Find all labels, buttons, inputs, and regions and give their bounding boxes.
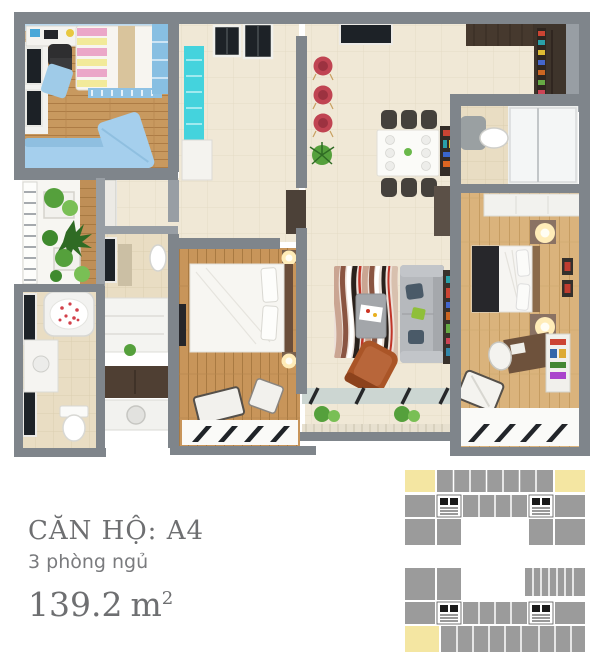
storage-nook — [100, 298, 168, 356]
shelf-plant — [124, 344, 136, 356]
master-window-blinds — [458, 408, 580, 446]
sofa-armrest — [400, 351, 444, 363]
unit-caption: CĂN HỘ: A4 3 phòng ngủ 139.2m2 — [28, 514, 204, 625]
kids-bed — [76, 26, 162, 98]
bath1-east-wall — [96, 286, 105, 456]
cyan-cabinet — [184, 46, 204, 140]
pillow — [261, 306, 278, 341]
coffee-table — [356, 294, 386, 338]
outer-wall-left-upper — [14, 12, 25, 180]
building-key-plans — [393, 464, 597, 658]
bathtub — [44, 292, 94, 336]
unit-title: CĂN HỘ: A4 — [28, 514, 204, 548]
hall-stub-wall — [168, 180, 179, 222]
unit-area: 139.2m2 — [28, 579, 204, 625]
pillow — [516, 250, 530, 277]
dark-cabinet — [102, 366, 168, 398]
dining-chair — [401, 110, 417, 129]
bed-runner — [118, 26, 135, 90]
kids-entry-wall — [168, 22, 179, 172]
area-exponent: 2 — [162, 588, 174, 609]
bed — [190, 264, 293, 352]
decor-plates — [313, 57, 333, 138]
loggia-garden — [22, 180, 96, 288]
small-bath-north-wall — [100, 226, 178, 234]
outer-wall-right — [579, 12, 590, 456]
bathroom1-vanity — [24, 340, 58, 392]
apartment-floorplan-page: CĂN HỘ: A4 3 phòng ngủ 139.2m2 — [0, 0, 600, 658]
small-bath-vanity — [118, 244, 132, 286]
sofa — [400, 265, 444, 363]
bedroom2-window-blinds — [182, 420, 298, 445]
hall-living-wall-lower — [296, 228, 307, 394]
sofa-armrest — [400, 265, 444, 277]
master-south-wall — [450, 447, 590, 456]
unit-row — [441, 626, 585, 652]
floor-plan-rendering — [0, 0, 600, 480]
washer-counter — [102, 400, 170, 430]
bedroom2-north-wall — [172, 238, 280, 249]
pillow — [516, 284, 530, 311]
table-centerpiece — [404, 148, 412, 156]
master-west-wall — [450, 94, 461, 448]
elevator-core — [529, 495, 553, 517]
key-plan-1 — [405, 470, 585, 545]
shoe-cabinet — [286, 190, 306, 234]
kids-desk — [26, 26, 82, 46]
highlighted-unit — [405, 626, 439, 652]
dining-set — [377, 110, 439, 197]
area-value: 139.2 — [28, 585, 122, 624]
bathroom-2 — [456, 106, 578, 184]
bath2-north-wall — [455, 94, 581, 106]
unit-bedroom-count: 3 phòng ngủ — [28, 549, 204, 575]
master-bed — [472, 246, 540, 312]
loggia-railing — [23, 182, 37, 284]
highlighted-unit — [555, 470, 585, 492]
key-plan-2 — [405, 568, 585, 652]
black-duvet — [472, 246, 499, 312]
small-bath-window — [104, 238, 116, 282]
dining-chair — [401, 178, 417, 197]
pillow — [261, 267, 278, 302]
throw-pillow — [405, 283, 424, 300]
magazine — [359, 305, 383, 323]
elevator-core — [437, 602, 461, 624]
outer-wall-left-lower — [14, 284, 23, 456]
balcony-glass-floor — [302, 388, 452, 404]
transom-glass-panel — [340, 24, 392, 44]
bath2-south-wall — [450, 184, 581, 193]
shower — [510, 108, 576, 182]
throw-pillow — [408, 330, 424, 344]
striped-units — [525, 568, 585, 596]
bed-footboard — [88, 88, 162, 98]
sofa-back — [433, 265, 444, 363]
entry-door-glass — [214, 24, 272, 58]
dining-chair — [381, 178, 397, 197]
dining-chair — [381, 110, 397, 129]
balcony-south-wall — [300, 432, 454, 441]
outer-wall-bottom-left — [14, 448, 106, 457]
white-cabinet — [182, 140, 212, 180]
bath1-north-wall — [14, 284, 104, 292]
elevator-core — [437, 495, 461, 517]
dining-chair — [421, 110, 437, 129]
bedroom2-south-wall — [170, 446, 316, 455]
wall-tv — [179, 304, 186, 346]
bedroom2-west-wall — [168, 234, 179, 448]
kitchen-dark-floor — [466, 24, 544, 46]
balcony-railing — [302, 424, 452, 433]
master-bookshelf — [546, 334, 570, 392]
outer-wall-top — [14, 12, 590, 24]
small-bath-toilet — [150, 245, 166, 271]
elevator-core — [529, 602, 553, 624]
hall-living-wall-upper — [296, 36, 307, 188]
toilet-bowl — [480, 128, 508, 148]
master-wardrobe — [484, 194, 580, 216]
highlighted-unit — [405, 470, 435, 492]
area-unit: m — [130, 585, 161, 624]
